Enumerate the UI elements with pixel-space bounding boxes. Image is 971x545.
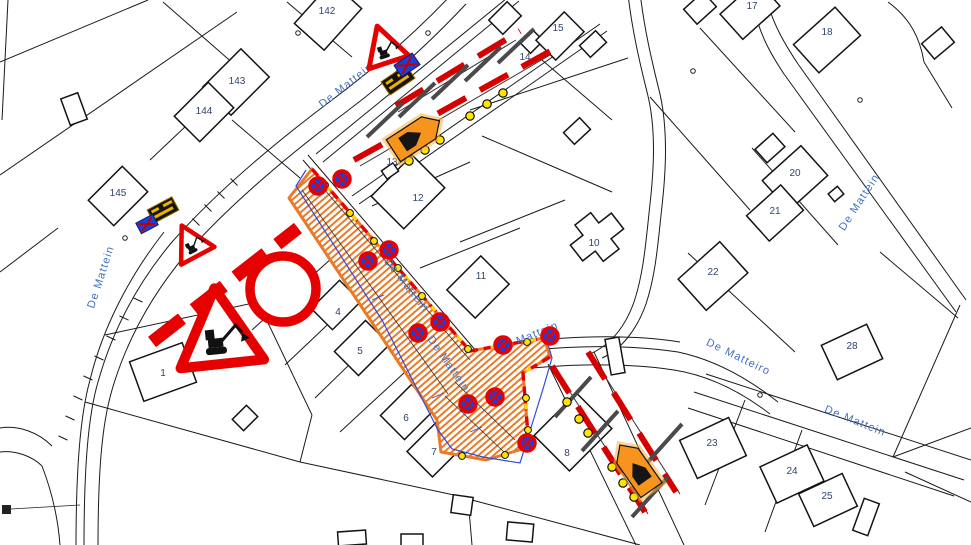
parcel-number-label: 6 [403, 413, 409, 424]
parcel-number-label: 17 [746, 1, 758, 12]
road-edge-line [602, 0, 666, 358]
building-outline [489, 2, 522, 35]
misc-marks [2, 505, 80, 514]
road-edge-line [505, 365, 770, 414]
no-stopping-sign-icon [460, 396, 476, 412]
warning-lamp-icon [563, 398, 571, 406]
closed-road-circle-sign [250, 256, 316, 322]
street-name-label: De Matteiro [704, 337, 772, 378]
survey-point-icon [123, 236, 128, 241]
building-outline [451, 495, 473, 516]
curb-hatch-tick [204, 204, 211, 211]
survey-point-icon [758, 393, 763, 398]
street-name-label: De Mattein [837, 172, 883, 233]
parcel-number-label: 12 [412, 193, 424, 204]
road-edge-line [42, 466, 60, 545]
traffic-plan-canvas: De MatteinDe MatteinDe MatteinDe Mattein… [0, 0, 971, 545]
parcel-number-label: 5 [357, 346, 363, 357]
curb-hatch-tick [119, 316, 128, 320]
building-outline [828, 186, 844, 201]
parcel-boundary-line [893, 305, 960, 457]
site-plan-drawing: De MatteinDe MatteinDe MatteinDe Mattein… [0, 0, 971, 545]
street-name-label: De Mattein [823, 403, 888, 439]
parcel-boundary-line [880, 252, 958, 318]
triangle-red-border [165, 217, 214, 265]
parcel-number-label: 25 [821, 491, 833, 502]
no-stopping-sign-icon [410, 325, 426, 341]
warning-lamp-icon [371, 238, 378, 245]
parcel-number-label: 145 [110, 188, 127, 199]
curb-hatch-tick [58, 436, 67, 440]
warning-lamp-icon [483, 100, 491, 108]
warning-lamp-icon [459, 453, 466, 460]
parcel-number-label: 10 [588, 238, 600, 249]
excavator-cab [205, 330, 215, 341]
no-stopping-sign-icon [495, 337, 511, 353]
parcel-number-label: 143 [229, 76, 246, 87]
parcel-number-label: 7 [431, 447, 437, 458]
warning-lamp-icon [499, 89, 507, 97]
parcel-number-label: 20 [789, 168, 801, 179]
survey-point-icon [296, 31, 301, 36]
building-outline [793, 7, 860, 73]
parcel-boundary-line [905, 472, 971, 502]
no-stopping-sign-icon [310, 178, 326, 194]
parcel-number-label: 18 [821, 27, 833, 38]
no-stopping-sign-icon [519, 435, 535, 451]
corner-marker-icon [2, 505, 11, 514]
survey-point-icon [426, 31, 431, 36]
warning-lamp-icon [502, 452, 509, 459]
building-outline [61, 93, 87, 125]
building-outline [401, 534, 423, 545]
warning-lamp-icon [465, 346, 472, 353]
parcel-number-label: 144 [196, 106, 213, 117]
parcel-boundary-line [700, 28, 795, 132]
road-edge-line [798, 64, 966, 300]
no-stopping-sign-icon [334, 171, 350, 187]
roadworks-triangle-sign [165, 217, 214, 265]
parcel-number-label: 4 [335, 307, 341, 318]
building-outline [371, 155, 445, 229]
warning-lamp-icon [575, 415, 583, 423]
no-stopping-sign-icon [360, 253, 376, 269]
parcel-boundary-curve [888, 2, 924, 62]
arrow-board-sign-icon [609, 438, 662, 498]
parcel-boundary-line [460, 200, 565, 242]
building-outline [605, 337, 625, 375]
building-outline [922, 27, 955, 59]
survey-point-icon [691, 69, 696, 74]
parcel-number-label: 21 [769, 206, 781, 217]
parcel-boundary-line [300, 415, 312, 462]
building-outline [755, 133, 785, 162]
parcel-boundary-line [2, 0, 8, 120]
parcel-number-label: 1 [160, 368, 166, 379]
arrow-board-sign-icon [386, 110, 446, 162]
warning-lamp-icon [584, 429, 592, 437]
road-edge-line [0, 427, 52, 446]
buildings [61, 0, 955, 545]
warning-lamp-icon [525, 427, 532, 434]
parcel-boundary-line [472, 500, 640, 545]
no-stopping-sign-icon [432, 314, 448, 330]
corner-marker-leader-line [11, 505, 80, 509]
road-edge-line [590, 0, 654, 354]
building-outline [684, 0, 717, 24]
warning-lamp-icon [347, 210, 354, 217]
building-outline [821, 324, 882, 380]
building-outline [506, 522, 533, 542]
parcel-number-label: 8 [564, 448, 570, 459]
parcel-boundary-line [482, 136, 612, 192]
curb-hatch-tick [133, 298, 142, 302]
parcel-boundary-line [85, 402, 300, 462]
fence-post [646, 424, 682, 464]
no-stopping-sign-icon [542, 328, 558, 344]
parcel-number-label: 11 [476, 271, 487, 282]
parcel-number-label: 28 [846, 341, 858, 352]
survey-point-icon [858, 98, 863, 103]
building-outline [563, 118, 590, 145]
parcel-boundary-line [924, 62, 952, 108]
curb-hatch-tick [65, 416, 74, 420]
no-stopping-sign-icon [381, 242, 397, 258]
warning-lamp-icon [523, 395, 530, 402]
parcel-boundary-line [0, 0, 148, 62]
building-outline [232, 405, 257, 430]
parcel-number-label: 15 [552, 23, 564, 34]
parcel-boundary-line [0, 228, 58, 272]
building-outline [338, 530, 367, 545]
parcel-number-label: 142 [319, 6, 336, 17]
road-edge-line [0, 452, 42, 466]
building-outline [447, 256, 509, 318]
parcel-boundary-line [232, 120, 300, 178]
street-name-label: De Mattein [85, 244, 117, 310]
parcel-number-label: 22 [707, 267, 719, 278]
parcel-boundary-line [893, 428, 971, 457]
parcel-number-label: 23 [706, 438, 718, 449]
parcel-boundary-line [420, 228, 520, 268]
parcel-number-label: 24 [786, 466, 798, 477]
warning-lamp-icon [466, 112, 474, 120]
curb-hatch-tick [192, 218, 199, 225]
curb-hatch-tick [73, 396, 82, 400]
building-outline-plus-shape [562, 203, 631, 271]
no-stopping-sign-icon [487, 389, 503, 405]
